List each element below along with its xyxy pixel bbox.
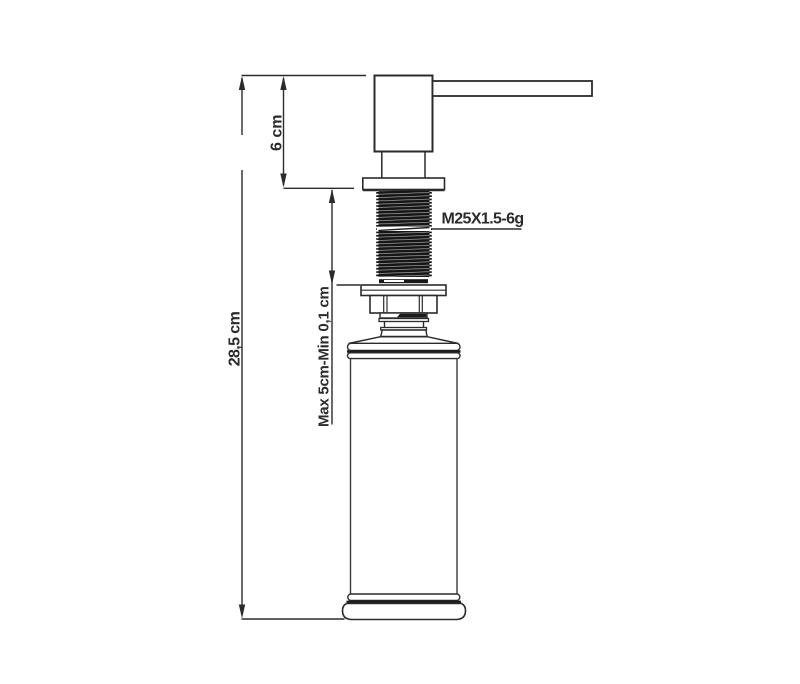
svg-text:M25X1.5-6g: M25X1.5-6g — [442, 210, 524, 227]
svg-text:Max 5cm-Min 0,1 cm: Max 5cm-Min 0,1 cm — [316, 286, 333, 427]
svg-text:28,5 cm: 28,5 cm — [227, 311, 244, 366]
svg-text:6 cm: 6 cm — [269, 115, 286, 151]
